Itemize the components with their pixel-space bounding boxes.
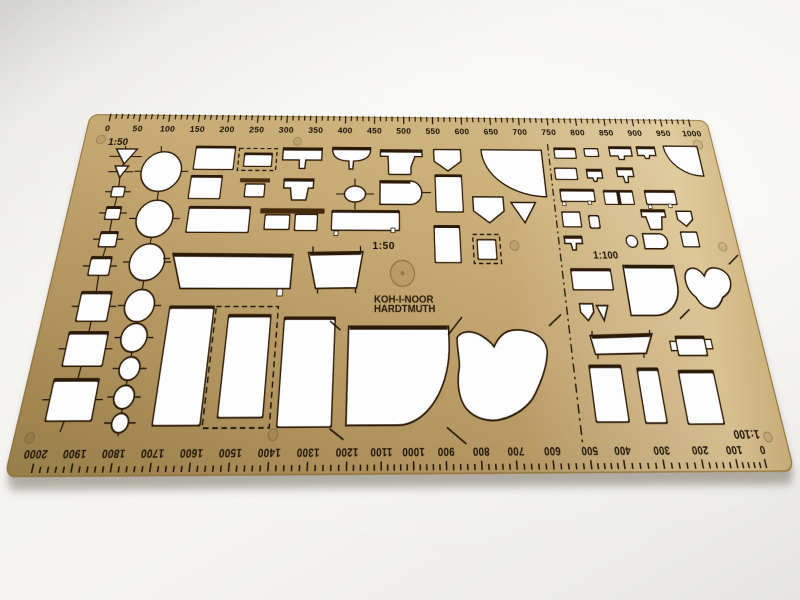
svg-text:1000: 1000 xyxy=(402,445,425,459)
svg-text:500: 500 xyxy=(396,127,411,136)
svg-text:800: 800 xyxy=(570,128,586,137)
svg-text:250: 250 xyxy=(249,125,265,134)
svg-text:1700: 1700 xyxy=(140,446,165,460)
svg-text:950: 950 xyxy=(655,129,672,138)
svg-text:700: 700 xyxy=(512,128,528,137)
svg-text:750: 750 xyxy=(541,128,557,137)
svg-text:400: 400 xyxy=(338,126,353,135)
svg-text:1900: 1900 xyxy=(61,447,87,462)
svg-text:HARDTMUTH: HARDTMUTH xyxy=(374,303,436,315)
svg-text:100: 100 xyxy=(724,443,744,457)
svg-text:850: 850 xyxy=(598,129,614,138)
svg-text:500: 500 xyxy=(580,444,599,458)
svg-text:1400: 1400 xyxy=(257,446,281,460)
svg-text:900: 900 xyxy=(627,129,643,138)
svg-text:1100: 1100 xyxy=(370,445,392,459)
svg-text:1:100: 1:100 xyxy=(592,249,619,261)
svg-text:550: 550 xyxy=(425,127,440,136)
svg-text:1:50: 1:50 xyxy=(107,137,129,148)
svg-text:300: 300 xyxy=(652,443,671,457)
svg-text:800: 800 xyxy=(472,444,490,458)
svg-text:150: 150 xyxy=(189,125,206,134)
svg-text:700: 700 xyxy=(507,444,525,458)
svg-text:50: 50 xyxy=(132,124,144,133)
svg-text:200: 200 xyxy=(690,443,709,457)
svg-text:1:100: 1:100 xyxy=(731,427,761,441)
svg-text:1000: 1000 xyxy=(681,129,703,138)
svg-text:650: 650 xyxy=(483,127,499,136)
svg-text:300: 300 xyxy=(278,126,294,135)
svg-text:1:50: 1:50 xyxy=(372,239,394,251)
svg-text:400: 400 xyxy=(613,444,632,458)
svg-text:200: 200 xyxy=(219,125,235,134)
svg-text:100: 100 xyxy=(159,124,176,133)
svg-text:1500: 1500 xyxy=(218,446,243,460)
svg-text:600: 600 xyxy=(543,444,561,458)
svg-text:600: 600 xyxy=(454,127,469,136)
svg-text:450: 450 xyxy=(367,126,382,135)
svg-text:1600: 1600 xyxy=(179,446,204,460)
svg-text:900: 900 xyxy=(437,445,455,459)
svg-text:1200: 1200 xyxy=(335,445,358,459)
svg-text:350: 350 xyxy=(308,126,324,135)
svg-text:1800: 1800 xyxy=(101,446,127,460)
svg-text:2000: 2000 xyxy=(22,447,49,462)
svg-text:1300: 1300 xyxy=(296,445,320,459)
